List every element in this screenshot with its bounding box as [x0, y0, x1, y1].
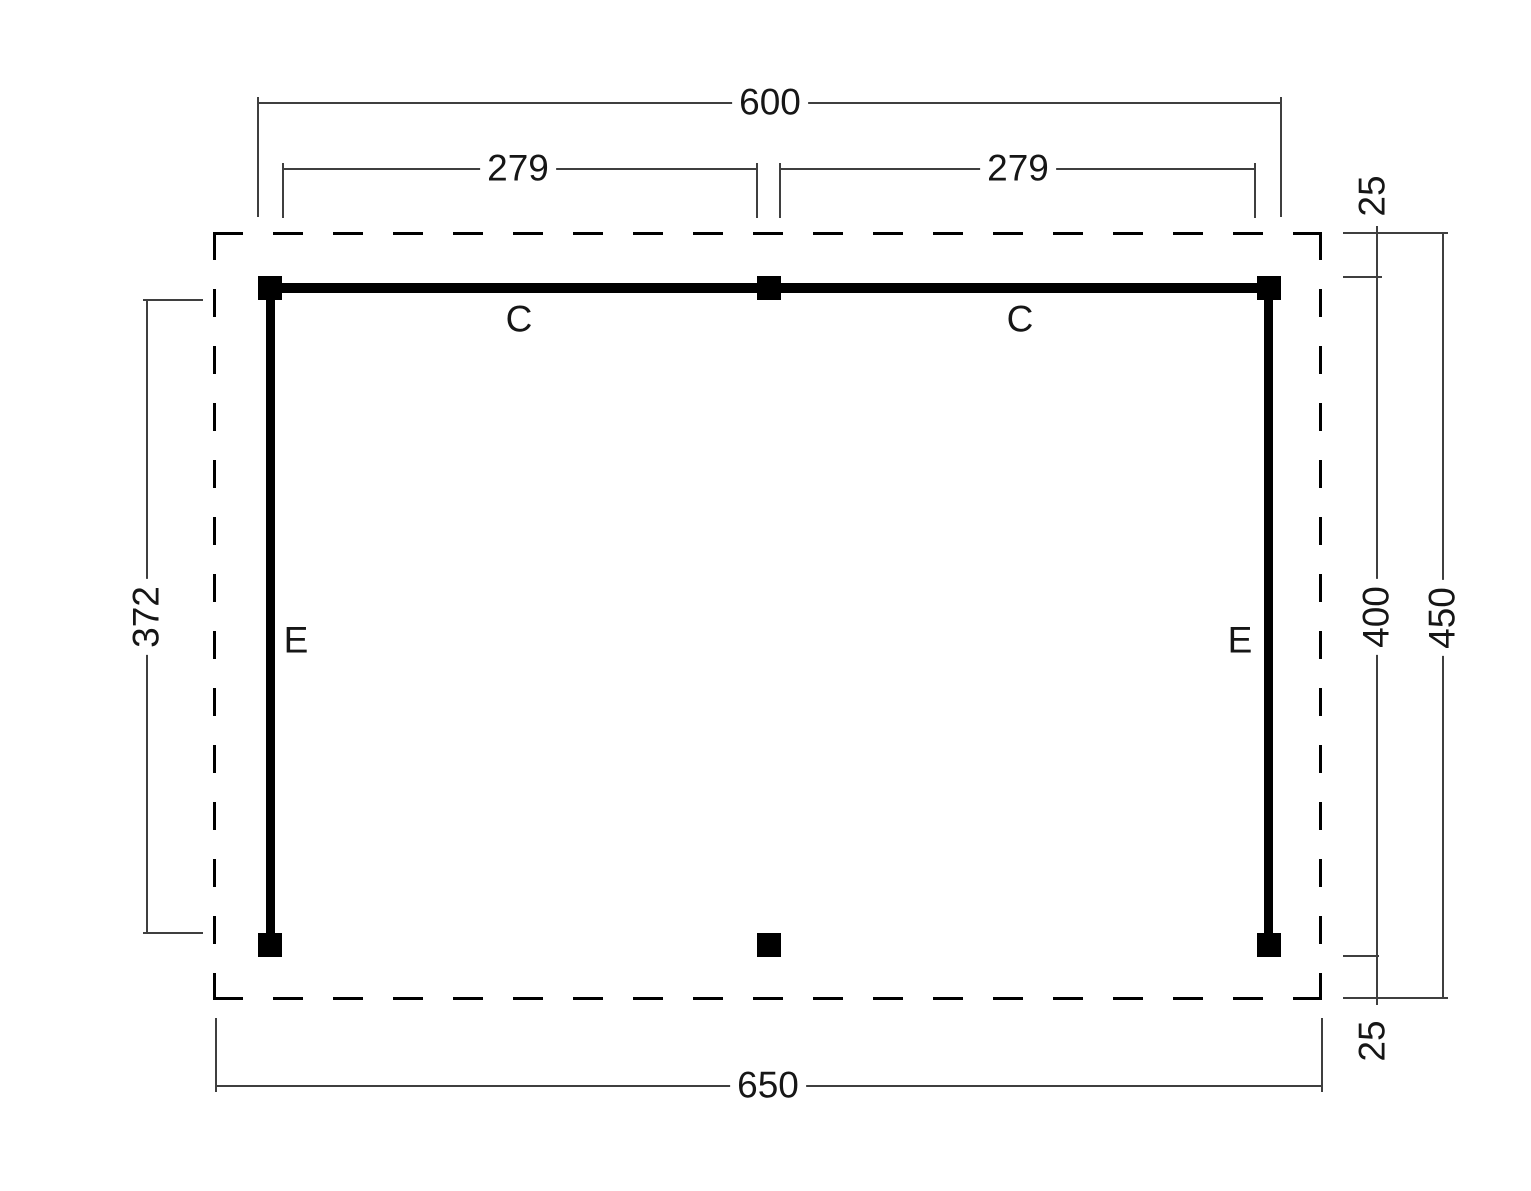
roof-outline-bottom — [213, 997, 1322, 1000]
dim-372-tick-top — [143, 299, 203, 301]
post-top-right — [1257, 276, 1281, 300]
dim-279-left-text: 279 — [480, 150, 556, 189]
dim-279-ext-2 — [756, 163, 758, 218]
dim-450-text: 450 — [1424, 580, 1463, 656]
label-beam-c-left: C — [506, 301, 533, 340]
dim-372-tick-bottom — [143, 932, 203, 934]
post-bottom-left — [258, 933, 282, 957]
dim-25-bottom-text: 25 — [1354, 1013, 1393, 1068]
dim-279-right-text: 279 — [980, 150, 1056, 189]
beam-right — [1264, 288, 1273, 945]
label-beam-e-right: E — [1228, 622, 1253, 661]
dim-right-tick-roof-top — [1343, 232, 1448, 234]
dim-25-top-text: 25 — [1354, 168, 1393, 223]
dim-right-tick-beam-top — [1343, 276, 1382, 278]
dim-600-text: 600 — [732, 84, 808, 123]
dim-650-text: 650 — [730, 1067, 806, 1106]
beam-left — [266, 288, 275, 945]
dim-600-ext-right — [1280, 97, 1282, 217]
dim-279-ext-3 — [779, 163, 781, 218]
dim-279-ext-4 — [1254, 163, 1256, 218]
post-top-middle — [757, 276, 781, 300]
label-beam-c-right: C — [1007, 301, 1034, 340]
dim-650-ext-right — [1321, 1018, 1323, 1092]
dim-600-ext-left — [257, 97, 259, 217]
dim-right-tick-post-bottom — [1343, 955, 1379, 957]
dim-650-ext-left — [215, 1018, 217, 1092]
dim-279-ext-1 — [282, 163, 284, 218]
floorplan-drawing: 600 279 279 25 400 450 25 372 650 C C E … — [0, 0, 1531, 1191]
post-bottom-right — [1257, 933, 1281, 957]
label-beam-e-left: E — [284, 622, 309, 661]
roof-outline-left — [213, 232, 216, 1000]
dim-right-tick-roof-bottom — [1343, 997, 1448, 999]
post-top-left — [258, 276, 282, 300]
roof-outline-top — [213, 232, 1322, 235]
post-bottom-middle — [757, 933, 781, 957]
roof-outline-right — [1319, 232, 1322, 1000]
dim-400-text: 400 — [1358, 579, 1397, 655]
dim-372-text: 372 — [128, 579, 167, 655]
